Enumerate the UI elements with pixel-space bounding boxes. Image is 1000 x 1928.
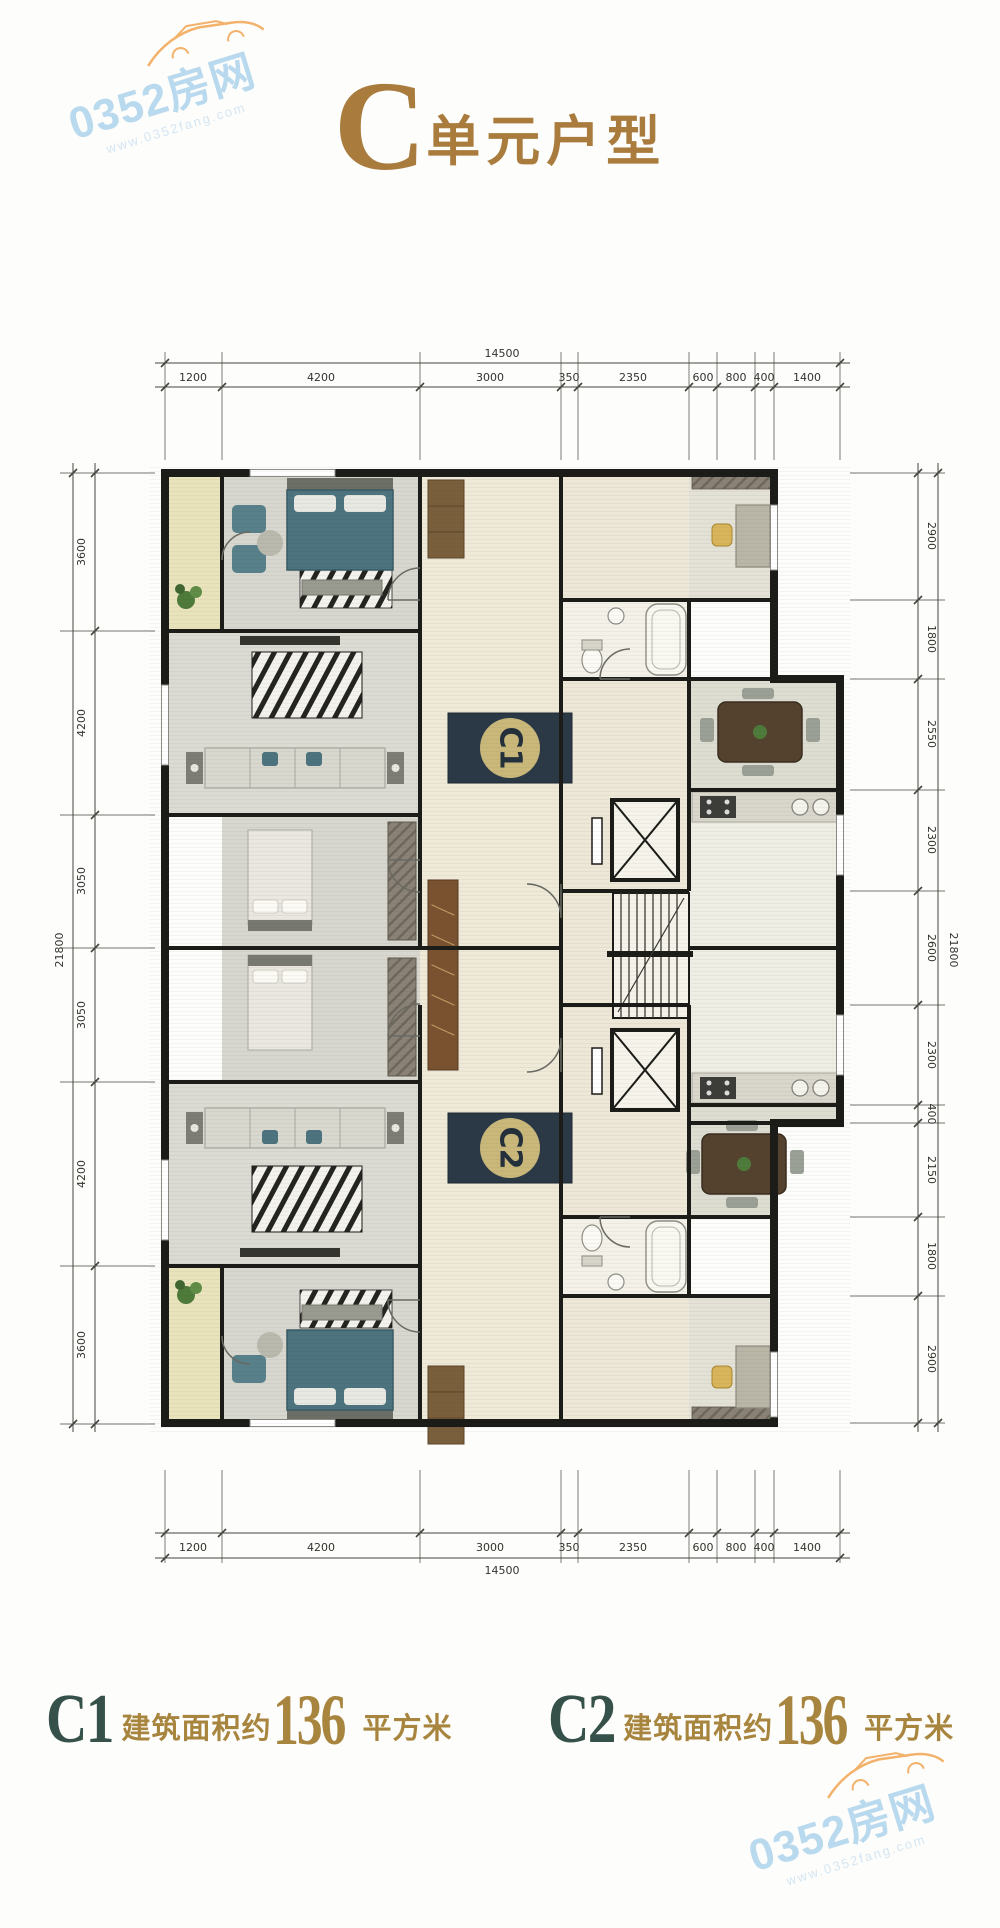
dim-top-1: 4200 (307, 371, 335, 384)
dim-bottom-4: 2350 (619, 1541, 647, 1554)
unit-c1-label: 建筑面积约 (121, 1705, 271, 1747)
unit-c1-value: 136 (273, 1690, 344, 1751)
unit-c2-label: 建筑面积约 (623, 1705, 773, 1747)
dim-right-4: 2600 (925, 934, 938, 962)
dim-bottom-8: 1400 (793, 1541, 821, 1554)
dim-top-0: 1200 (179, 371, 207, 384)
dimension-left (60, 463, 155, 1432)
page: 0352房网 www.0352fang.com C单元户型 (0, 0, 1000, 1928)
unit-c2-suffix: 平方米 (864, 1705, 954, 1747)
dim-left-2: 3050 (75, 867, 88, 895)
dim-right-9: 2900 (925, 1345, 938, 1373)
dim-bottom-7: 400 (754, 1541, 775, 1554)
footer-area-info: C1 建筑面积约 136 平方米 C2 建筑面积约 136 平方米 (0, 1688, 1000, 1751)
dim-bottom-total: 14500 (485, 1564, 520, 1577)
dim-top-3: 350 (559, 371, 580, 384)
dim-bottom-3: 350 (559, 1541, 580, 1554)
unit-c1-name: C1 (46, 1688, 113, 1751)
dim-left-5: 3600 (75, 1331, 88, 1359)
dimension-top (155, 352, 850, 460)
dim-right-1: 1800 (925, 625, 938, 653)
dim-bottom-1: 4200 (307, 1541, 335, 1554)
dim-right-0: 2900 (925, 522, 938, 550)
dim-top-2: 3000 (476, 371, 504, 384)
dim-right-7: 2150 (925, 1156, 938, 1184)
dim-bottom-0: 1200 (179, 1541, 207, 1554)
dim-bottom-5: 600 (693, 1541, 714, 1554)
dim-left-0: 3600 (75, 538, 88, 566)
dim-left-4: 4200 (75, 1160, 88, 1188)
dim-right-5: 2300 (925, 1041, 938, 1069)
unit-c2-name: C2 (548, 1688, 615, 1751)
unit-c2-area: C2 建筑面积约 136 平方米 (548, 1688, 955, 1751)
floor-plan: C1 C2 (0, 0, 1000, 1928)
dim-top-4: 2350 (619, 371, 647, 384)
dim-top-total: 14500 (485, 347, 520, 360)
texture-overlay (150, 465, 850, 1435)
dim-right-6: 400 (925, 1104, 938, 1125)
dim-right-2: 2550 (925, 720, 938, 748)
dim-left-1: 4200 (75, 709, 88, 737)
dim-bottom-6: 800 (726, 1541, 747, 1554)
dim-top-8: 1400 (793, 371, 821, 384)
dim-right-3: 2300 (925, 826, 938, 854)
unit-c1-suffix: 平方米 (362, 1705, 452, 1747)
unit-c1-area: C1 建筑面积约 136 平方米 (46, 1688, 453, 1751)
dim-right-8: 1800 (925, 1242, 938, 1270)
dim-top-6: 800 (726, 371, 747, 384)
dim-bottom-2: 3000 (476, 1541, 504, 1554)
unit-c2-value: 136 (775, 1690, 846, 1751)
dim-top-7: 400 (754, 371, 775, 384)
dim-left-total: 21800 (53, 933, 66, 968)
dim-left-3: 3050 (75, 1001, 88, 1029)
dim-right-total: 21800 (947, 933, 960, 968)
dim-top-5: 600 (693, 371, 714, 384)
